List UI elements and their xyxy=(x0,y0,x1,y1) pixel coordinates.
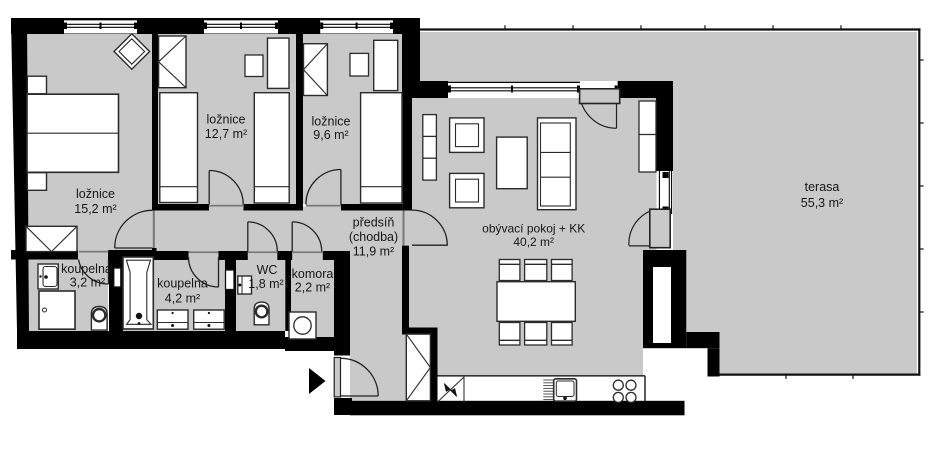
svg-text:komora: komora xyxy=(292,267,334,281)
svg-text:15,2 m²: 15,2 m² xyxy=(74,202,116,216)
svg-text:55,3 m²: 55,3 m² xyxy=(801,196,843,210)
svg-text:ložnice: ložnice xyxy=(312,115,351,129)
svg-text:1,8 m²: 1,8 m² xyxy=(248,277,283,291)
svg-text:11,9 m²: 11,9 m² xyxy=(353,245,394,259)
svg-text:koupelna: koupelna xyxy=(61,262,112,276)
svg-text:ložnice: ložnice xyxy=(76,187,115,201)
svg-text:(chodba): (chodba) xyxy=(349,230,398,244)
svg-text:40,2 m²: 40,2 m² xyxy=(513,235,554,249)
svg-text:předsíň: předsíň xyxy=(353,216,395,230)
svg-text:9,6 m²: 9,6 m² xyxy=(313,128,348,142)
svg-text:WC: WC xyxy=(257,263,278,277)
svg-text:ložnice: ložnice xyxy=(207,113,246,127)
svg-text:12,7 m²: 12,7 m² xyxy=(205,127,247,141)
svg-text:koupelna: koupelna xyxy=(157,277,208,291)
svg-text:2,2 m²: 2,2 m² xyxy=(295,281,330,295)
svg-text:terasa: terasa xyxy=(805,180,840,194)
svg-text:obývací pokoj + KK: obývací pokoj + KK xyxy=(482,222,585,236)
svg-text:3,2 m²: 3,2 m² xyxy=(70,276,105,290)
svg-text:4,2 m²: 4,2 m² xyxy=(165,292,200,306)
